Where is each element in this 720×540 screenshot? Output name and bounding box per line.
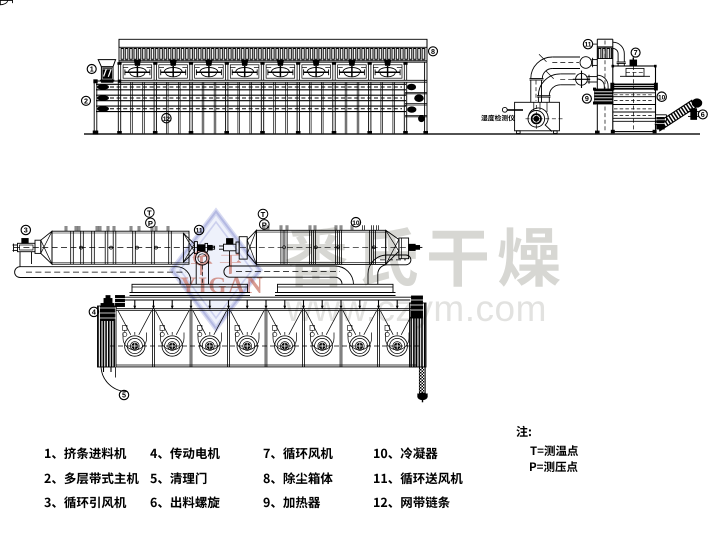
svg-text:6: 6 <box>701 110 705 119</box>
svg-text:8: 8 <box>431 47 435 56</box>
svg-text:T: T <box>261 210 266 219</box>
svg-text:12: 12 <box>163 116 171 123</box>
svg-text:P: P <box>262 220 267 229</box>
svg-text:4: 4 <box>92 308 96 317</box>
svg-text:1: 1 <box>90 65 94 74</box>
svg-text:10: 10 <box>352 220 360 227</box>
svg-text:P: P <box>148 219 153 228</box>
svg-text:9: 9 <box>585 94 589 103</box>
svg-text:5: 5 <box>122 391 126 400</box>
svg-text:7: 7 <box>634 48 638 57</box>
svg-text:11: 11 <box>585 42 592 49</box>
svg-text:10: 10 <box>658 94 666 101</box>
svg-text:11: 11 <box>196 228 203 235</box>
svg-text:2: 2 <box>84 96 88 105</box>
svg-text:3: 3 <box>24 226 28 235</box>
svg-text:T: T <box>147 208 152 217</box>
